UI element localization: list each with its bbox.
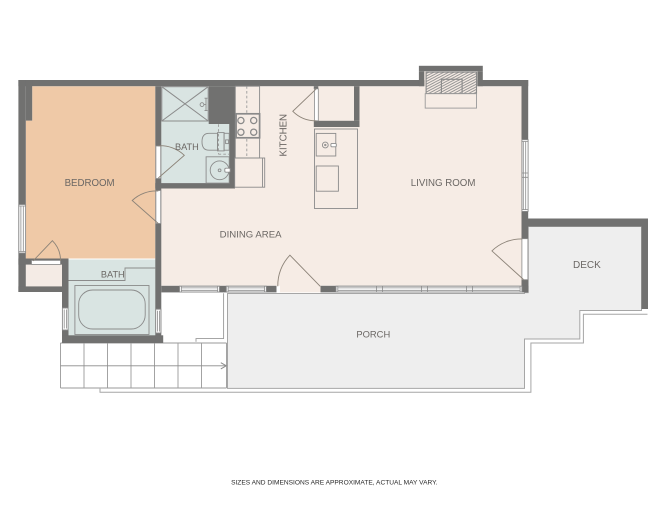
svg-text:LIVING ROOM: LIVING ROOM — [411, 178, 476, 189]
svg-text:BATH: BATH — [175, 142, 199, 152]
svg-text:PORCH: PORCH — [356, 329, 390, 340]
svg-text:BEDROOM: BEDROOM — [65, 178, 115, 189]
svg-text:SIZES AND DIMENSIONS ARE APPRO: SIZES AND DIMENSIONS ARE APPROXIMATE, AC… — [231, 480, 438, 487]
svg-text:BATH: BATH — [101, 269, 125, 279]
svg-text:KITCHEN: KITCHEN — [278, 114, 289, 157]
svg-text:DINING AREA: DINING AREA — [220, 230, 282, 241]
svg-text:DECK: DECK — [573, 260, 601, 271]
